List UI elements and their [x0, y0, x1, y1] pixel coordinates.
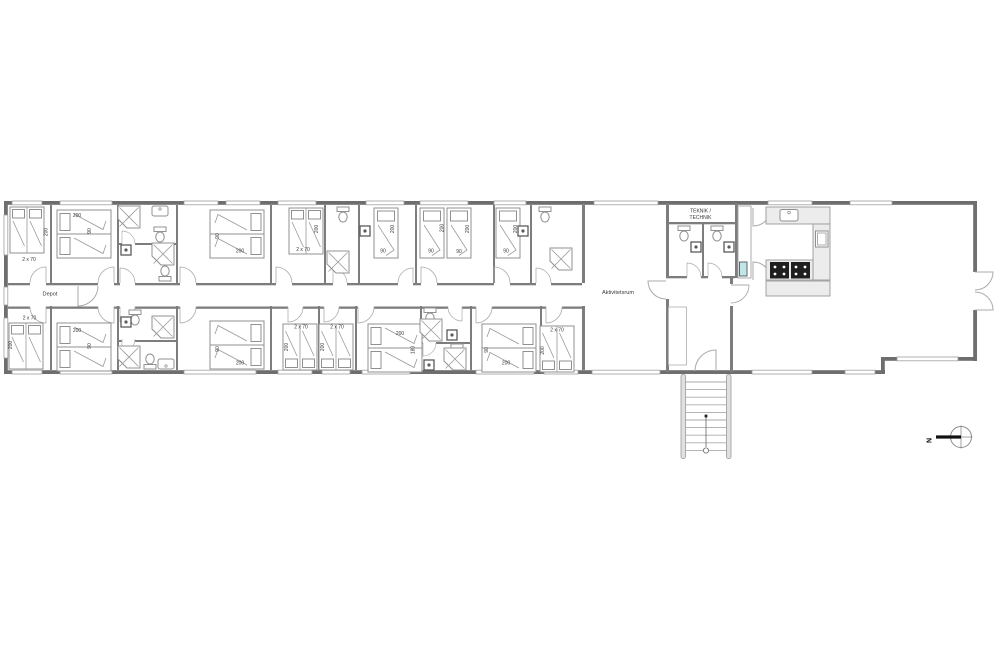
bed [57, 323, 111, 347]
dim-length: 200 [513, 225, 519, 234]
bed [210, 321, 264, 345]
floor-plan-canvas: N Depot Aktivitetsrum TEKNIK / TECHNIK 2… [0, 0, 1000, 652]
toilet [678, 226, 690, 241]
dim-length: 200 [44, 228, 50, 237]
door-arc [180, 267, 196, 283]
dim-single: 90 [87, 343, 93, 349]
dim-bunk: 2 x 70 [330, 325, 344, 331]
door-arc [98, 267, 114, 283]
shower [152, 316, 174, 338]
door-arc [98, 307, 114, 323]
dim-bunk: 2 x 70 [550, 328, 564, 334]
toilet [539, 207, 551, 222]
shower [550, 248, 572, 270]
dim-bunk: 2 x 70 [23, 316, 37, 322]
bed [57, 210, 111, 234]
door-arc [648, 281, 666, 299]
door-arc [695, 350, 716, 371]
sink [158, 359, 174, 369]
dim-length: 200 [314, 225, 320, 234]
shower [327, 251, 349, 273]
door-arc [358, 307, 374, 323]
door-arc [78, 286, 98, 306]
door-arc [288, 307, 303, 322]
cooktop [770, 262, 789, 279]
door-arc [476, 307, 492, 323]
entrance-stairs [681, 375, 731, 459]
wall-sink [691, 242, 701, 252]
door-arc [975, 292, 993, 310]
dim-length: 200 [320, 343, 326, 352]
north-arrow [936, 435, 961, 438]
shower [420, 319, 442, 341]
dim-length: 200 [465, 225, 471, 234]
floor-plan: N Depot Aktivitetsrum TEKNIK / TECHNIK 2… [0, 0, 1000, 652]
shower [118, 346, 140, 368]
door-arc [30, 267, 46, 283]
toilet [337, 207, 349, 222]
dim-double: 180 [411, 346, 417, 355]
wall-sink [518, 226, 528, 236]
bed [57, 347, 111, 371]
door-arc [494, 267, 510, 283]
north-compass: N [927, 426, 973, 449]
toilet [711, 226, 723, 241]
room-label-depot: Depot [43, 292, 58, 298]
dim-single: 90 [215, 346, 221, 352]
toilet [159, 266, 171, 281]
door-arc [731, 285, 749, 303]
door-arc [421, 267, 437, 283]
door-arc [180, 307, 196, 323]
shower [118, 206, 140, 228]
wall-sink [724, 242, 734, 252]
entry-wardrobe [669, 307, 687, 365]
door-arc [536, 268, 551, 283]
door-arc [448, 307, 462, 321]
dim-length: 200 [396, 331, 405, 337]
door-arc [687, 263, 701, 277]
door-arc [122, 231, 135, 244]
dim-length: 200 [502, 361, 511, 367]
dim-single: 90 [428, 249, 434, 255]
room-label-teknik-2: TECHNIK [690, 215, 713, 221]
sink [152, 206, 168, 216]
wall-sink [424, 360, 434, 370]
dim-length: 200 [73, 213, 82, 219]
dim-length: 200 [236, 361, 245, 367]
wall-sink [121, 317, 131, 327]
door-arc [398, 268, 413, 283]
dim-bunk: 2 x 70 [296, 247, 310, 253]
dim-length: 200 [236, 249, 245, 255]
dim-single: 90 [215, 233, 221, 239]
dim-single: 90 [503, 249, 509, 255]
dim-length: 200 [440, 224, 446, 233]
toilet [144, 354, 156, 369]
dim-single: 90 [380, 249, 386, 255]
dim-length: 200 [284, 343, 290, 352]
toilet [154, 227, 166, 242]
dim-bunk: 2 x 70 [294, 325, 308, 331]
room-label-teknik-1: TEKNIK / [690, 209, 711, 215]
door-arc [324, 307, 339, 322]
shower [444, 348, 466, 370]
bed [482, 324, 536, 348]
door-arc [546, 307, 562, 323]
bed [210, 210, 264, 234]
room-label-aktivitetsrum: Aktivitetsrum [602, 290, 634, 296]
bunk-bed [9, 323, 43, 369]
water-heater [740, 262, 748, 276]
bunk-bed [10, 207, 44, 253]
dim-bunk: 2 x 70 [22, 257, 36, 263]
dim-length: 200 [8, 341, 14, 350]
door-arc [423, 343, 436, 356]
dim-single: 90 [87, 228, 93, 234]
bed [57, 234, 111, 258]
wall-sink [121, 245, 131, 255]
door-arc [276, 267, 292, 283]
shower [152, 243, 174, 265]
door-arc [120, 268, 135, 283]
dim-length: 200 [73, 328, 82, 334]
dim-length: 200 [390, 225, 396, 234]
kitchen-island [766, 281, 830, 296]
north-label: N [927, 438, 934, 443]
wall-sink [447, 330, 457, 340]
door-arc [975, 272, 993, 290]
dim-length: 200 [540, 346, 546, 355]
wall-sink [360, 226, 370, 236]
door-arc [708, 263, 722, 277]
dim-single: 90 [484, 347, 490, 353]
cooktop [791, 262, 810, 279]
dim-single: 90 [456, 249, 462, 255]
